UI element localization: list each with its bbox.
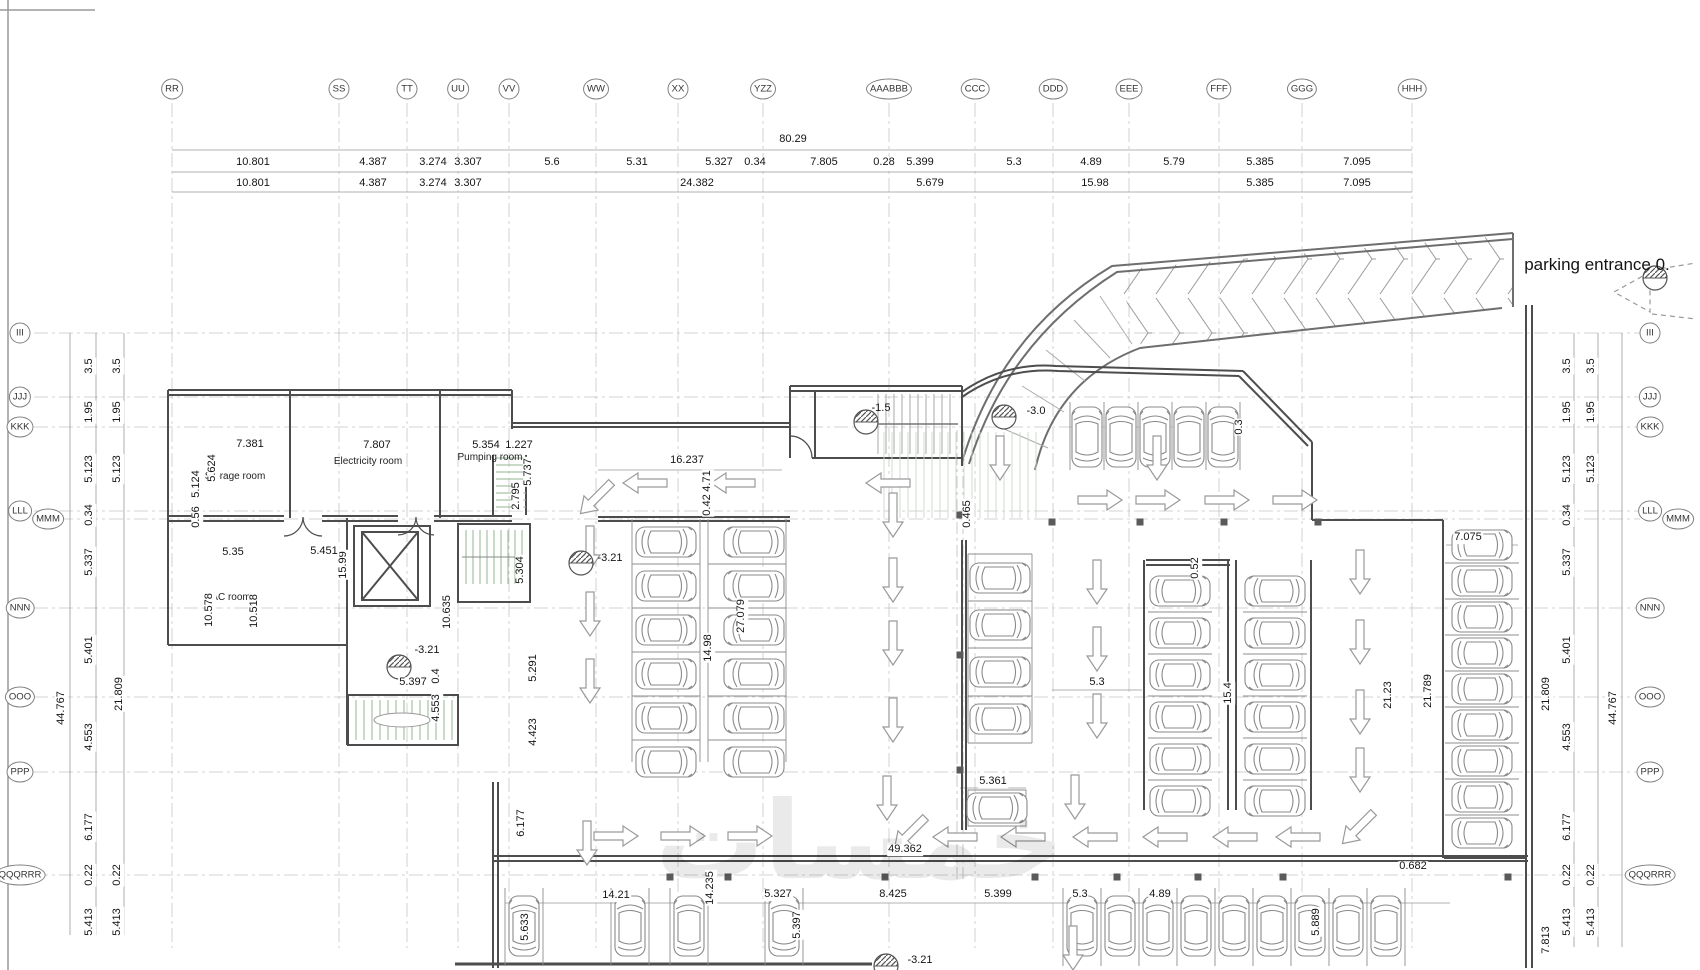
dim-label: 5.337 [84,547,96,577]
grid-bubble-ppp: PPP [6,762,33,783]
dim-label: 5.304 [515,555,527,585]
spot-elevation-label: -1.5 [871,403,892,415]
dim-label: 0.34 [84,503,96,526]
dim-label: 5.397 [792,910,804,940]
grid-bubble-kkk: KKK [6,417,33,438]
dim-label: 4.89 [1079,157,1102,169]
dim-label: 0.682 [1398,861,1428,873]
parked-cars [509,407,1512,956]
entrance-label: parking entrance 0. [1523,256,1671,274]
spot-elevation-label: -3.0 [1026,406,1047,418]
dim-label: 5.79 [1162,157,1185,169]
dim-label: 16.237 [669,455,705,467]
dim-label: 5.633 [520,912,532,942]
dim-label: 0.22 [1562,863,1574,886]
dim-label: 3.5 [112,357,124,374]
grid-bubble-ppp: PPP [1636,762,1663,783]
dim-label: 2.795 [511,481,523,511]
dim-label: 5.889 [1311,907,1323,937]
dim-label: 5.624 [207,453,219,483]
dim-label: 0.34 [743,157,766,169]
dim-label: 5.123 [1562,454,1574,484]
dim-label: 5.123 [84,454,96,484]
dim-label: 5.413 [1586,907,1598,937]
dim-label: 44.767 [56,690,68,726]
dim-label: 3.307 [453,157,483,169]
dim-label: 80.29 [778,134,808,146]
dim-label: 10.801 [235,157,271,169]
grid-bubble-vv: VV [499,79,520,100]
dim-label: 5.3 [1071,889,1088,901]
dim-label: 0.22 [112,863,124,886]
dim-label: 3.274 [418,178,448,190]
dim-label: 0.22 [84,863,96,886]
dim-label: 5.385 [1245,157,1275,169]
dim-label: 3.5 [84,357,96,374]
dim-label: 0.28 [872,157,895,169]
grid-bubble-ww: WW [583,79,609,100]
dim-label: 3.307 [453,178,483,190]
dim-label: 10.635 [442,594,454,630]
dim-label: 7.075 [1453,532,1483,544]
room-label-pumping: Pumping room [456,453,523,464]
grid-bubble-ooo: OOO [1635,687,1665,708]
dim-label: 0.56 [191,505,203,528]
spot-elevation-label: -3.21 [596,553,623,565]
dim-label: 5.3 [1088,677,1105,689]
dim-label: 4.553 [431,693,443,723]
dim-label: 7.813 [1541,925,1553,955]
dim-label: 5.35 [221,547,244,559]
grid-bubble-xx: XX [668,79,689,100]
dim-label: 1.95 [1586,400,1598,423]
grid-bubble-ddd: DDD [1039,79,1068,100]
dim-label: 5.124 [191,469,203,499]
dim-label: 4.387 [358,157,388,169]
grid-bubble-iii: III [10,323,31,344]
room-label-electricity: Electricity room [333,457,403,468]
dim-label: 5.399 [983,889,1013,901]
dim-label: 3.5 [1586,357,1598,374]
grid-bubble-eee: EEE [1115,79,1142,100]
dim-label: 5.737 [523,457,535,487]
dim-label: 0.22 [1586,863,1598,886]
dim-label: 5.327 [704,157,734,169]
dim-label: 0.52 [1190,556,1202,579]
dim-label: 7.095 [1342,178,1372,190]
dim-label: 1.95 [1562,400,1574,423]
dim-label: 21.23 [1383,680,1395,710]
floor-plan-canvas: خمسات 80.2910.8014.3873.2743.3075.65.315… [0,0,1700,970]
grid-bubble-ooo: OOO [5,687,35,708]
dim-label: 5.413 [1562,907,1574,937]
dim-label: 4.89 [1148,889,1171,901]
grid-bubble-mmm: MMM [1662,509,1694,530]
dim-label: 0.42 [702,493,714,516]
dim-label: 1.95 [112,400,124,423]
dim-label: 10.578 [204,592,216,628]
dim-label: 10.801 [235,178,271,190]
grid-bubble-hhh: HHH [1398,79,1427,100]
dim-label: 7.381 [235,439,265,451]
dim-label: 6.177 [516,808,528,838]
dim-label: 4.387 [358,178,388,190]
dim-label: 3.5 [1562,357,1574,374]
spot-elevation-label: -3.21 [413,645,440,657]
dim-label: 7.805 [809,157,839,169]
drawing-frame [0,0,95,970]
dim-label: 5.354 [471,440,501,452]
grid-bubble-rr: RR [161,79,183,100]
spot-elevation-label: -3.21 [906,955,933,967]
dim-label: 14.235 [705,870,717,906]
dim-label: 4.553 [1562,722,1574,752]
dim-label: 0.3 [1234,418,1246,435]
dim-label: 5.3 [1005,157,1022,169]
dim-label: 5.401 [1562,635,1574,665]
dim-label: 27.079 [736,598,748,634]
plan-linework [0,0,1700,970]
dim-label: 49.362 [887,844,923,856]
grid-bubble-aaabbb: AAABBB [866,79,912,100]
dim-label: 4.553 [84,722,96,752]
dim-label: 1.95 [84,400,96,423]
grid-bubble-ggg: GGG [1287,79,1317,100]
dim-label: 4.423 [528,717,540,747]
grid-bubble-ccc: CCC [961,79,990,100]
grid-bubble-mmm: MMM [32,509,64,530]
dim-label: 44.767 [1608,690,1620,726]
grid-bubble-qqqrrr: QQQRRR [1625,865,1676,886]
dim-label: 6.177 [1562,812,1574,842]
grid-bubble-tt: TT [397,79,418,100]
grid-bubble-uu: UU [447,79,469,100]
grid-bubble-ss: SS [329,79,350,100]
grid-bubble-kkk: KKK [1636,417,1663,438]
dim-label: 7.807 [362,440,392,452]
grid-bubble-iii: III [1640,323,1661,344]
dim-label: 15.98 [1080,178,1110,190]
dim-label: 5.451 [309,546,339,558]
dim-label: 5.123 [112,454,124,484]
dim-label: 24.382 [679,178,715,190]
dim-label: 21.809 [114,676,126,712]
dim-label: 14.21 [601,890,631,902]
dim-label: 21.789 [1423,673,1435,709]
dim-label: 5.413 [84,907,96,937]
dim-label: 5.361 [978,776,1008,788]
grid-bubble-lll: LLL [8,501,32,522]
dim-label: 5.413 [112,907,124,937]
dim-label: 5.397 [398,677,428,689]
dim-label: 4.71 [702,469,714,492]
dim-label: 5.123 [1586,454,1598,484]
dim-label: 5.679 [915,178,945,190]
dim-label: 0.34 [1562,503,1574,526]
grid-bubble-nnn: NNN [1636,598,1665,619]
room-label-ac: AC room [210,593,251,604]
dim-label: 8.425 [878,889,908,901]
dim-label: 10.518 [249,593,261,629]
dim-label: 1.227 [504,440,534,452]
dim-label: 15.99 [338,550,350,580]
grid-bubble-lll: LLL [1638,501,1662,522]
grid-bubble-nnn: NNN [6,598,35,619]
dim-label: 5.31 [625,157,648,169]
dim-label: 5.337 [1562,547,1574,577]
dim-label: 5.385 [1245,178,1275,190]
grid-bubble-yzz: YZZ [750,79,776,100]
walls [168,305,1532,968]
dim-label: 0.465 [962,499,974,529]
dim-label: 3.274 [418,157,448,169]
dim-label: 15.4 [1223,681,1235,704]
dim-label: 21.809 [1541,676,1553,712]
dim-label: 6.177 [84,812,96,842]
dim-label: 5.291 [528,653,540,683]
dim-label: 5.401 [84,635,96,665]
dim-label: 5.399 [905,157,935,169]
dim-label: 7.095 [1342,157,1372,169]
dim-label: 5.6 [543,157,560,169]
dim-label: 14.98 [703,633,715,663]
dim-label: 0.4 [431,667,443,684]
dim-label: 5.327 [763,889,793,901]
